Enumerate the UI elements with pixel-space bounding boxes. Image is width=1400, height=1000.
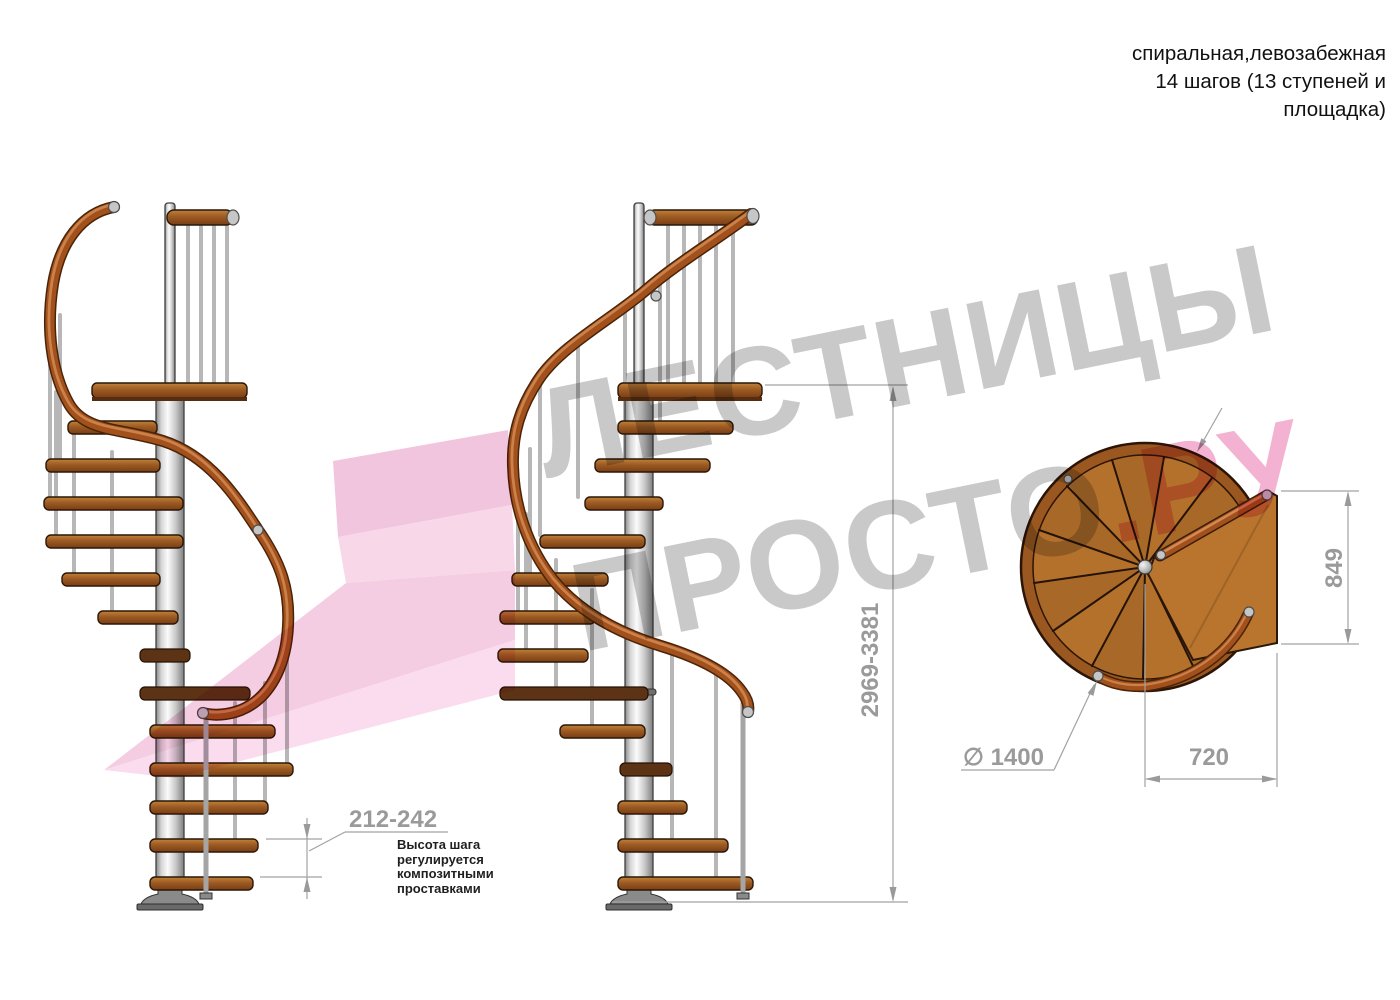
- drawing-title: спиральная,левозабежная 14 шагов (13 сту…: [1132, 40, 1386, 124]
- step-height-note: Высота шага регулируется композитными пр…: [397, 838, 494, 896]
- technical-drawing: 2969-3381 849 720 ∅ 1400: [0, 0, 1400, 1000]
- watermark-logo: [104, 430, 515, 778]
- title-line-3: площадка): [1132, 96, 1386, 124]
- title-line-1: спиральная,левозабежная: [1132, 40, 1386, 68]
- title-line-2: 14 шагов (13 ступеней и: [1132, 68, 1386, 96]
- watermark: ЛЕСТНИЦЫ ПРОСТО.РУ: [0, 0, 1400, 1000]
- watermark-line2-pink: .РУ: [1091, 392, 1317, 570]
